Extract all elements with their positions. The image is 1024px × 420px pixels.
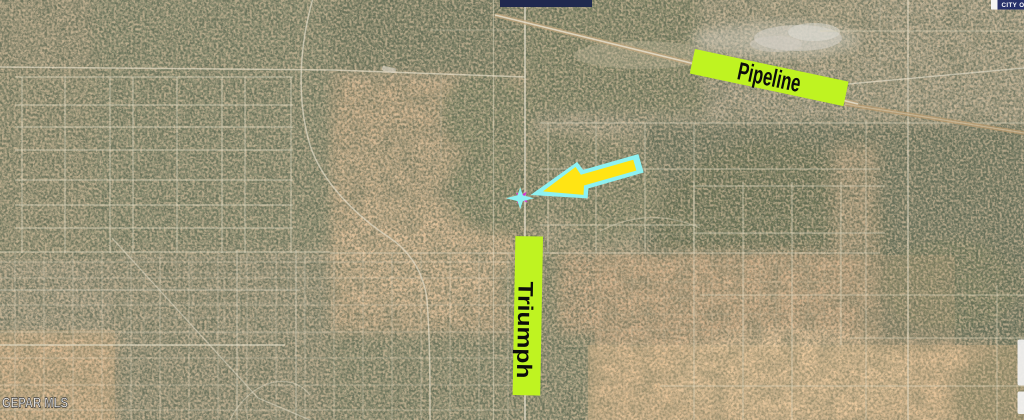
svg-text:Triumph: Triumph — [512, 281, 538, 378]
svg-text:GEPAR MLS: GEPAR MLS — [2, 394, 68, 411]
svg-text:CITY OF: CITY OF — [1002, 2, 1024, 9]
